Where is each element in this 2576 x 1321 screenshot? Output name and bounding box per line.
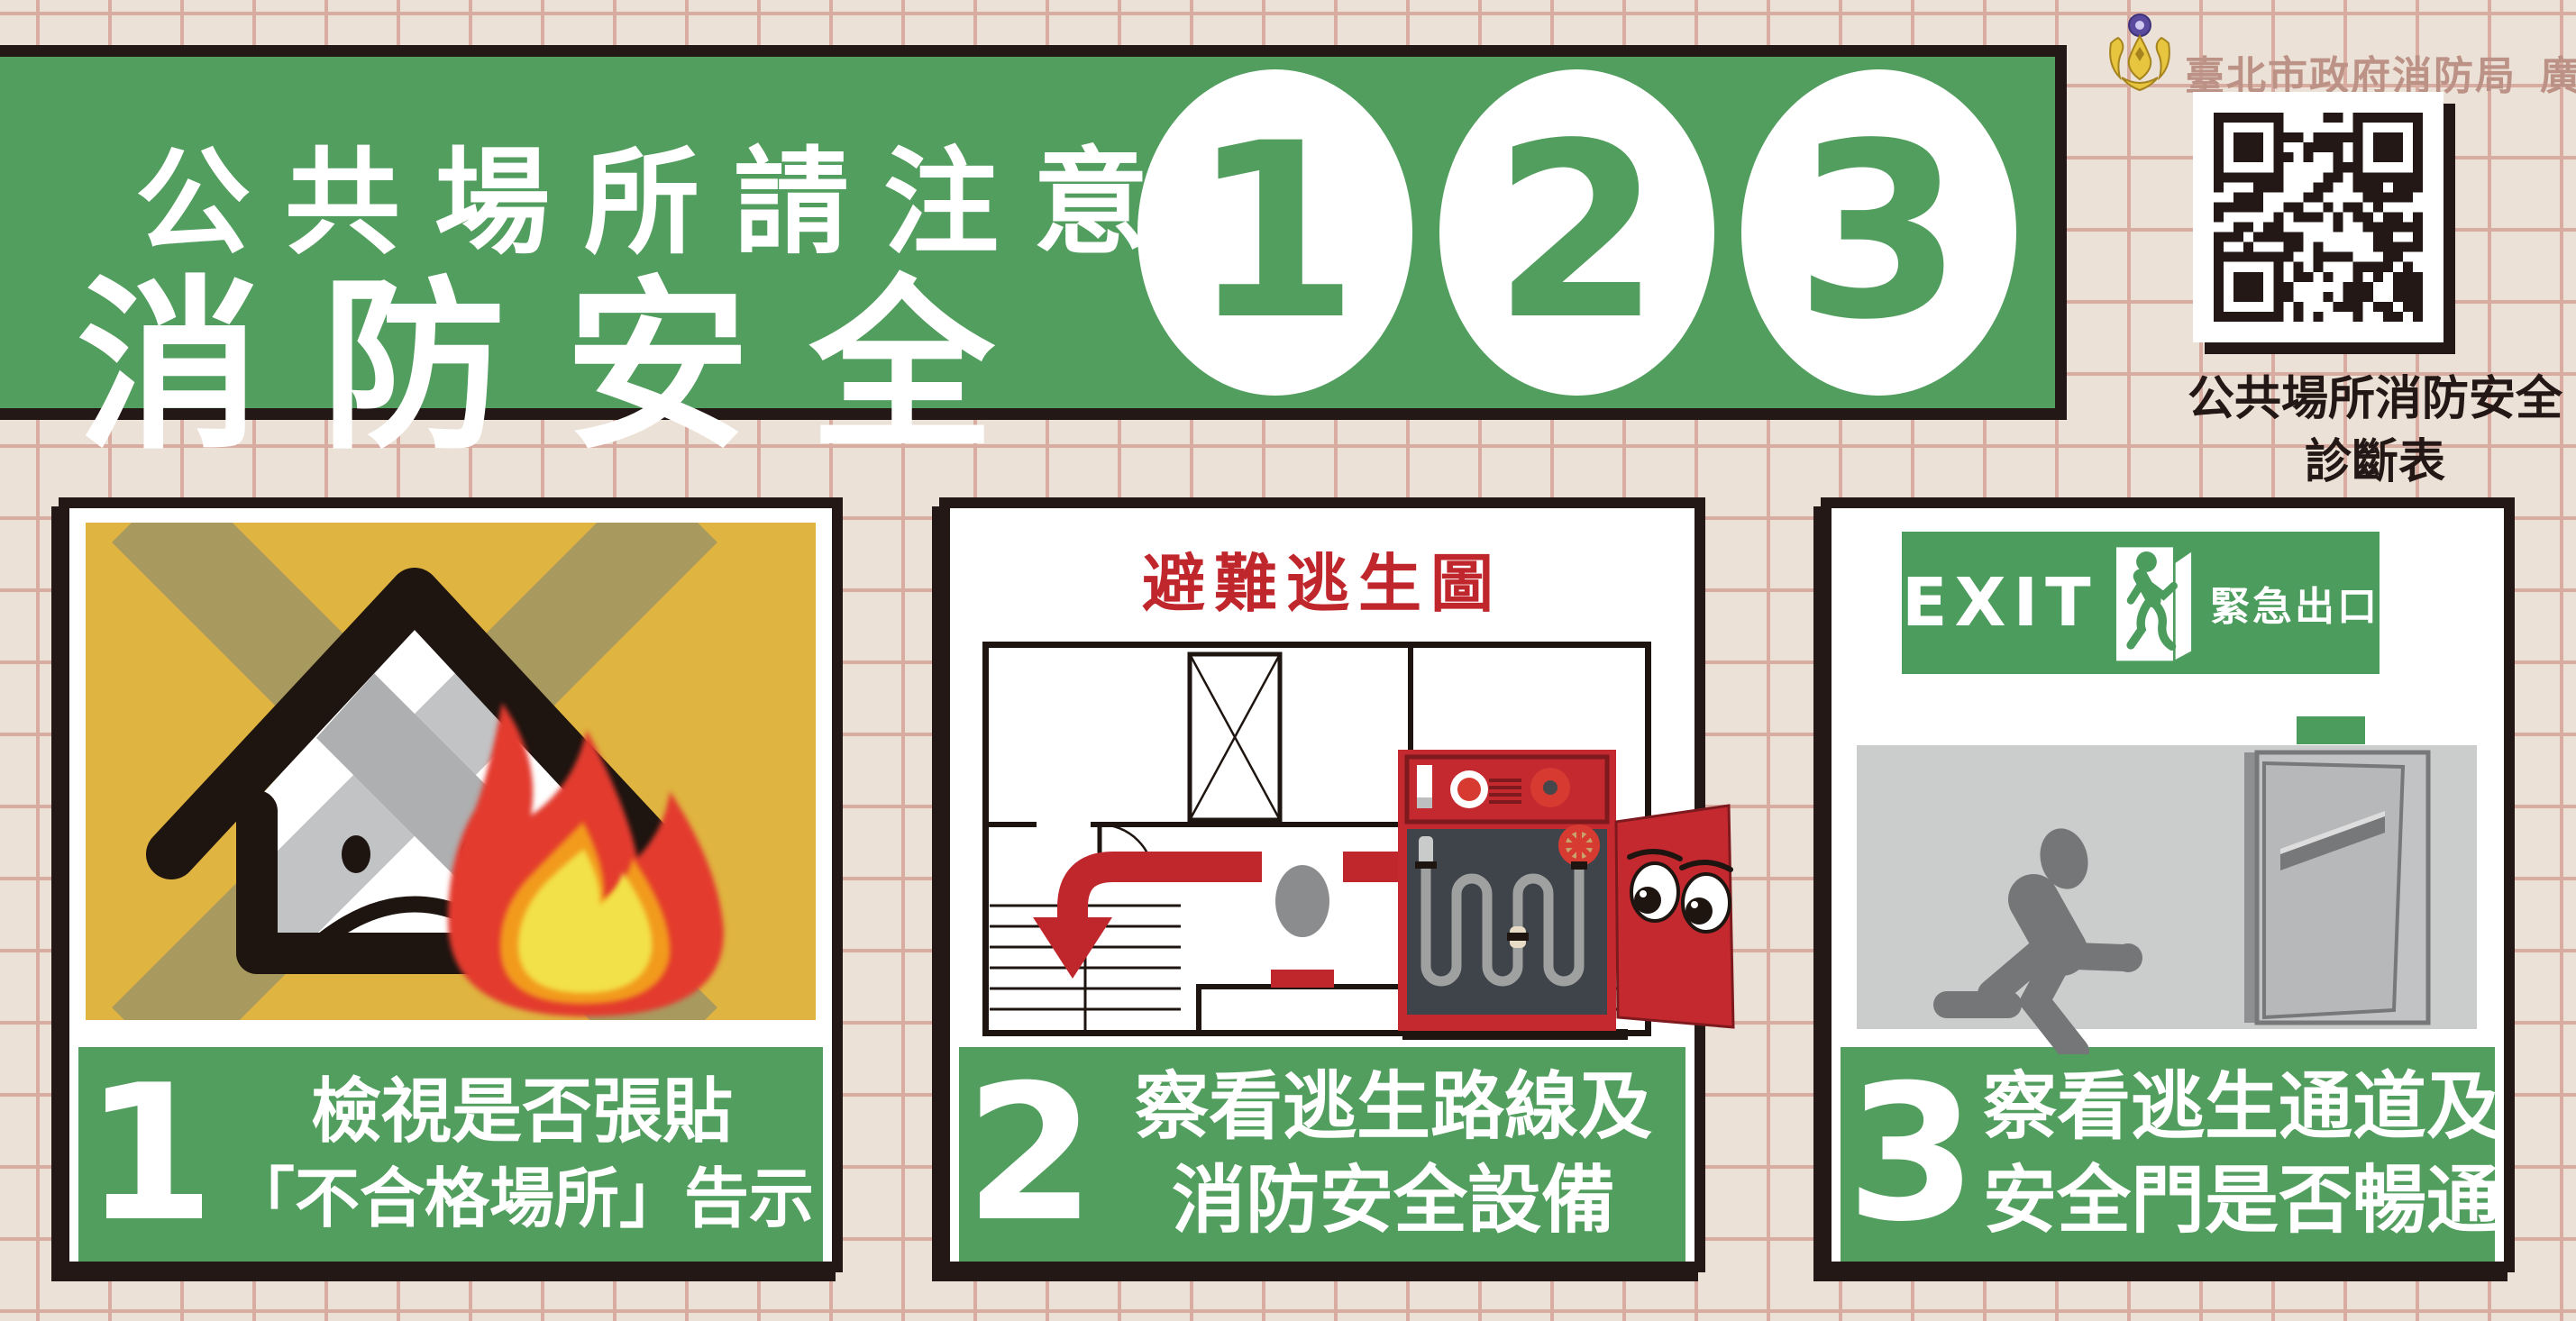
banner: 公共場所請注意 消防安全 1 2 3 [0,45,2067,420]
qr-caption-line2: 診斷表 [2174,431,2576,494]
caption-band-2: 2 察看逃生路線及 消防安全設備 [959,1047,1685,1262]
step-number: 2 [959,1061,1101,1248]
crossed-out-burning-house-icon [86,523,816,1020]
qr-caption-line1: 公共場所消防安全 [2174,368,2576,431]
caption-line-1: 察看逃生路線及 [1101,1067,1685,1148]
alarm-button-icon [1457,778,1481,801]
caption-line-1: 察看逃生通道及 [1983,1067,2500,1148]
exit-running-man-icon [2113,542,2196,663]
banner-title: 消防安全 [77,217,1054,485]
qr-code-pattern [2214,113,2423,322]
step-panel-3: EXIT 緊急出口 [1821,497,2515,1272]
caption-line-2: 「不合格場所」告示 [221,1163,823,1234]
caption-line-2: 消防安全設備 [1101,1161,1685,1242]
step-3-badge: 3 [1741,69,2016,396]
ad-tag: 廣告 [2540,53,2576,99]
exit-sign-text: EXIT [1902,564,2098,642]
exit-light-icon [2297,716,2365,744]
step-panel-2: 避難逃生圖 [939,497,1705,1272]
fire-door-icon [2244,752,2428,1023]
caption-line-2: 安全門是否暢通 [1983,1161,2500,1242]
caption-line-1: 檢視是否張貼 [221,1074,823,1152]
corridor-scene [1857,712,2477,1054]
step-panel-1: 1 檢視是否張貼 「不合格場所」告示 [59,497,843,1272]
phoenix-emblem-icon [2106,13,2174,92]
fire-hose-cabinet-icon [1395,750,1747,1056]
exit-sign-label: 緊急出口 [2210,574,2380,632]
person-dot-icon [1275,865,1329,937]
cabinet-door-with-eyes-icon [1616,806,1733,1027]
step-caption: 察看逃生通道及 安全門是否暢通 [1983,1067,2500,1242]
step-number: 3 [1841,1061,1983,1248]
exit-sign: EXIT 緊急出口 [1902,532,2380,674]
step-number: 1 [78,1061,221,1248]
step-1-badge: 1 [1137,69,1412,396]
step-caption: 察看逃生路線及 消防安全設備 [1101,1067,1685,1242]
evacuation-map-title: 避難逃生圖 [950,533,1694,624]
caption-band-1: 1 檢視是否張貼 「不合格場所」告示 [78,1047,823,1262]
caption-band-3: 3 察看逃生通道及 安全門是否暢通 [1841,1047,2495,1262]
qr-caption: 公共場所消防安全 診斷表 [2174,368,2576,494]
step-2-badge: 2 [1439,69,1714,396]
fire-safety-poster: 公共場所請注意 消防安全 1 2 3 臺北市政府消防局廣告 公共場所消防安全 診… [0,0,2576,1321]
step-caption: 檢視是否張貼 「不合格場所」告示 [221,1074,823,1235]
qr-code [2193,92,2444,342]
